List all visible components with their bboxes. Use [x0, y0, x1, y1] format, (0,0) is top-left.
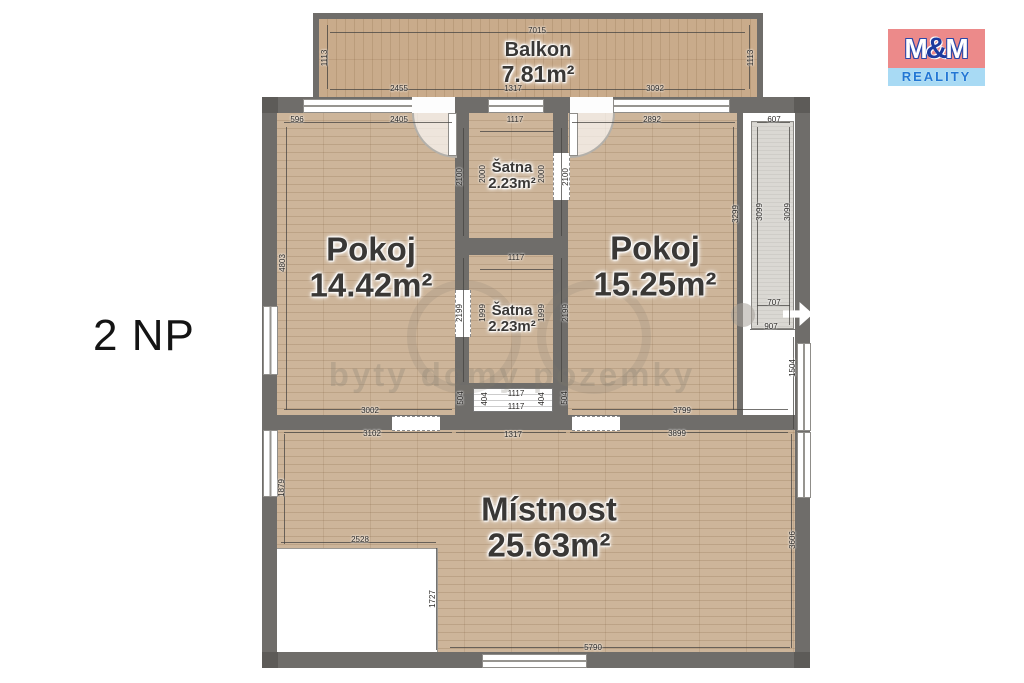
balcony-wall-top	[313, 13, 763, 19]
window-left-lower	[263, 430, 278, 497]
room-area: 14.42m²	[310, 267, 433, 303]
room-label-pokoj-left: Pokoj 14.42m²	[310, 231, 433, 302]
room-name: Šatna	[488, 160, 536, 176]
room-name: Balkon	[502, 40, 575, 62]
stair-void	[277, 548, 438, 654]
floorplan-canvas: 2 NP M&M REALITY	[0, 0, 1024, 683]
floor-level-label: 2 NP	[93, 311, 195, 361]
door-leaf-left	[448, 113, 457, 156]
door-leaf-right	[569, 113, 578, 156]
room-name: Pokoj	[310, 231, 433, 267]
satna-top-passage	[553, 153, 570, 200]
logo-reality-text: REALITY	[888, 68, 985, 86]
window-right-upper	[797, 343, 811, 431]
window-left-upper	[263, 306, 278, 375]
corner-bottom-right	[794, 652, 810, 668]
logo-letter-m2: M	[945, 33, 968, 65]
divider-wall	[277, 415, 795, 430]
balcony-door-opening-right	[570, 97, 613, 113]
passage-pokoj-right	[572, 416, 620, 431]
window-top-left	[303, 99, 414, 113]
pokoj-right-east-wall	[737, 113, 743, 415]
room-label-balkon: Balkon 7.81m²	[502, 40, 575, 86]
room-name: Šatna	[488, 303, 536, 319]
room-area: 25.63m²	[481, 527, 617, 563]
passage-pokoj-left	[392, 416, 440, 431]
satna-mid-wall	[455, 238, 568, 255]
room-name: Pokoj	[594, 230, 717, 266]
room-name: Místnost	[481, 491, 617, 527]
room-label-satna-top: Šatna 2.23m²	[488, 160, 536, 192]
balcony-door-opening-left	[412, 97, 455, 113]
utility-shaft	[751, 121, 794, 329]
window-right-lower	[797, 432, 811, 498]
room-area: 2.23m²	[488, 176, 536, 192]
logo-ampersand: &	[926, 32, 948, 66]
corner-top-right	[794, 97, 810, 113]
room-area: 15.25m²	[594, 266, 717, 302]
corner-top-left	[262, 97, 278, 113]
window-top-right	[613, 99, 730, 113]
window-bottom	[482, 654, 587, 668]
mm-reality-logo: M&M REALITY	[888, 29, 985, 86]
entry-circle	[731, 303, 755, 327]
logo-letter-m1: M	[904, 33, 927, 65]
balcony-wall-left	[313, 13, 319, 97]
room-area: 2.23m²	[488, 319, 536, 335]
watermark-text: byty domy pozemky	[329, 356, 695, 394]
room-area: 7.81m²	[502, 61, 575, 86]
logo-mm-text: M&M	[888, 29, 985, 68]
room-label-mistnost: Místnost 25.63m²	[481, 491, 617, 562]
corner-bottom-left	[262, 652, 278, 668]
window-top-middle	[488, 99, 544, 113]
room-label-pokoj-right: Pokoj 15.25m²	[594, 230, 717, 301]
balcony-wall-right	[757, 13, 763, 97]
outer-wall-left	[262, 97, 277, 668]
room-label-satna-bottom: Šatna 2.23m²	[488, 303, 536, 335]
